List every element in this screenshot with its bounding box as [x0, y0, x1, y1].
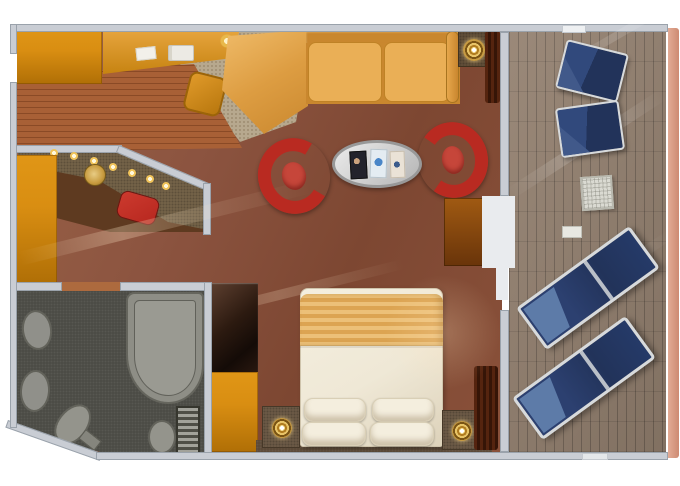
armchair-seat [440, 144, 467, 175]
bed-blanket [300, 294, 443, 346]
floor-lamp [458, 31, 488, 67]
corner-sofa-main [306, 30, 460, 104]
wall-left-lower [10, 82, 17, 428]
suite-floorplan [0, 0, 680, 486]
magazine-blue [369, 149, 387, 179]
bathtub-basin [134, 300, 196, 396]
magazine-light [390, 151, 406, 179]
bed-pillow [370, 422, 434, 446]
tv-cabinet [444, 198, 484, 266]
side-table [580, 175, 614, 211]
bed-pillow [304, 398, 366, 422]
floor-lamp-shade [463, 39, 485, 61]
balcony-wall-notch-bottom [582, 453, 608, 460]
wall-balcony-divider-upper [500, 32, 509, 196]
sofa-cushion [308, 42, 382, 102]
bed-pillow [372, 398, 434, 422]
desk-phone [168, 45, 194, 61]
bed-pillow [302, 422, 366, 446]
armchair-seat [279, 160, 309, 193]
bedside-lamp-left [272, 418, 292, 438]
spot-light [146, 175, 154, 183]
ship-hull-edge [668, 28, 679, 458]
nightstand-left [262, 406, 300, 448]
bathroom-wall-top2 [120, 282, 212, 291]
entry-closet [16, 28, 102, 84]
bidet [148, 420, 176, 454]
bedside-lamp-right [452, 421, 472, 441]
vanity-wall-end [203, 183, 211, 235]
spot-light [109, 163, 117, 171]
desk-paper [135, 46, 156, 61]
bedroom-curtain [474, 366, 498, 450]
wardrobe-column [13, 155, 57, 283]
towel-radiator [176, 406, 200, 454]
wall-balcony-divider-lower [500, 310, 509, 452]
spot-light [70, 152, 78, 160]
deck-chair-cushion [557, 57, 590, 93]
wall-left-upper [10, 24, 17, 54]
window-curtain [485, 31, 500, 103]
deck-chair-lower [555, 100, 625, 158]
vanity-sink [84, 164, 106, 186]
bathroom-wall-right [204, 282, 212, 460]
bathroom-door-opening [62, 282, 120, 291]
magazine-dark [349, 151, 367, 180]
sofa-cushion [384, 42, 450, 102]
deck-pad [562, 226, 582, 238]
bathtub [126, 292, 204, 404]
closet-column-dark [210, 283, 258, 373]
spot-light [128, 169, 136, 177]
entry-door-opening [10, 54, 17, 82]
deck-chair-cushion [559, 123, 590, 156]
bathroom-wall-top [10, 282, 62, 291]
vanity-wall [12, 145, 122, 153]
closet-column-orange [210, 372, 258, 452]
lounger-crossbar [579, 351, 609, 391]
bed-fold-line [300, 345, 443, 348]
spot-light [162, 182, 170, 190]
lounger-crossbar [583, 261, 613, 301]
balcony-wall-notch-top [562, 25, 586, 33]
